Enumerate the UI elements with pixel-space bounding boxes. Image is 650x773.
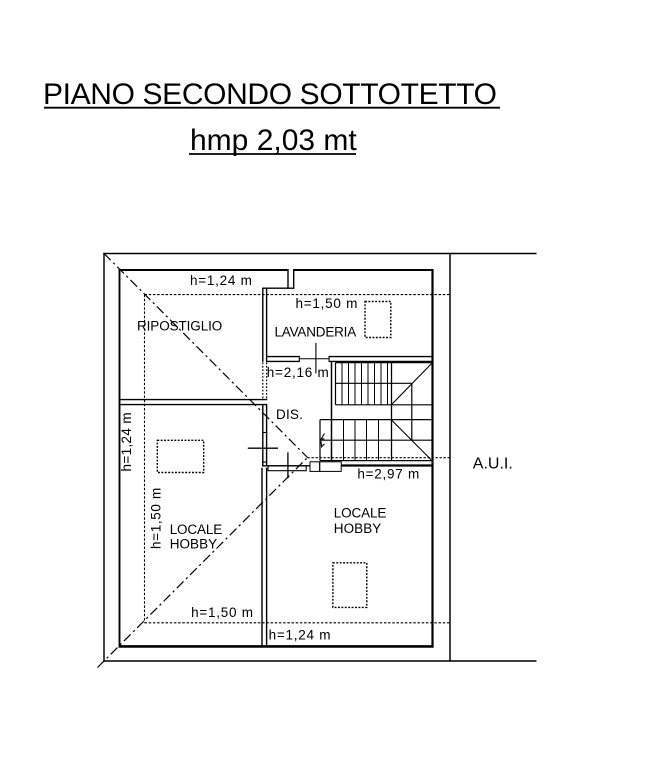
svg-text:h=2,16 m: h=2,16 m (267, 365, 330, 380)
svg-text:h=1,24 m: h=1,24 m (119, 412, 134, 471)
svg-text:h=2,97 m: h=2,97 m (357, 467, 420, 482)
svg-text:HOBBY: HOBBY (334, 521, 382, 536)
svg-text:h=1,50 m: h=1,50 m (191, 605, 254, 620)
svg-text:h=1,24 m: h=1,24 m (190, 273, 253, 288)
svg-text:PIANO SECONDO SOTTOTETTO: PIANO SECONDO SOTTOTETTO (43, 78, 497, 111)
svg-text:h=1,50 m: h=1,50 m (296, 296, 359, 311)
svg-text:A.U.I.: A.U.I. (473, 455, 513, 472)
svg-text:HOBBY: HOBBY (170, 537, 218, 552)
svg-text:LAVANDERIA: LAVANDERIA (275, 325, 357, 340)
svg-text:LOCALE: LOCALE (334, 506, 387, 521)
svg-text:hmp 2,03 mt: hmp 2,03 mt (190, 124, 357, 157)
svg-text:RIPOSTIGLIO: RIPOSTIGLIO (137, 319, 222, 334)
svg-text:LOCALE: LOCALE (170, 522, 223, 537)
svg-text:h=1,24 m: h=1,24 m (269, 627, 332, 642)
svg-text:h=1,50 m: h=1,50 m (149, 487, 164, 549)
svg-text:DIS.: DIS. (276, 407, 303, 422)
